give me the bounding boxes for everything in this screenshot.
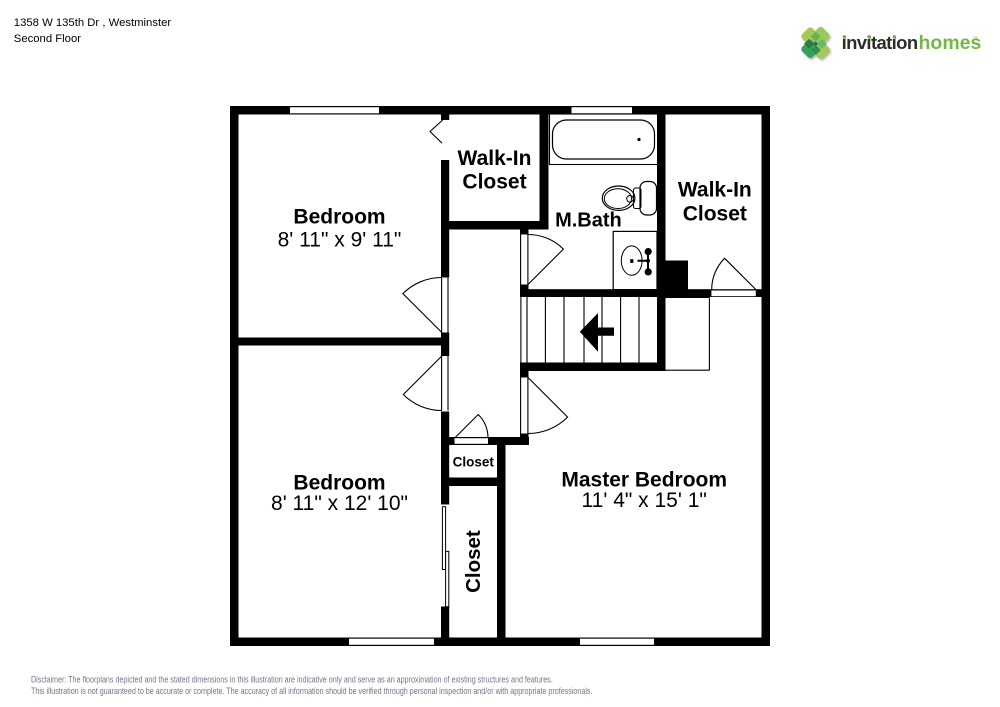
svg-text:Walk-In: Walk-In <box>678 179 752 202</box>
svg-text:8' 11" x 9' 11": 8' 11" x 9' 11" <box>278 228 402 251</box>
svg-text:Closet: Closet <box>453 454 495 469</box>
svg-text:Bedroom: Bedroom <box>293 206 385 229</box>
svg-text:Closet: Closet <box>462 171 526 194</box>
svg-text:Disclaimer: The floorplans dep: Disclaimer: The floorplans depicted and … <box>31 674 553 685</box>
svg-text:™: ™ <box>973 36 978 42</box>
svg-text:invitation: invitation <box>842 32 918 53</box>
svg-text:11' 4" x 15' 1": 11' 4" x 15' 1" <box>582 489 707 512</box>
svg-text:Second Floor: Second Floor <box>14 33 81 45</box>
svg-text:8' 11" x 12' 10": 8' 11" x 12' 10" <box>271 492 408 515</box>
svg-text:Walk-In: Walk-In <box>458 147 532 170</box>
svg-text:Closet: Closet <box>683 202 747 225</box>
svg-text:M.Bath: M.Bath <box>555 209 622 231</box>
svg-text:This illustration is not guara: This illustration is not guaranteed to b… <box>31 685 592 696</box>
svg-text:Closet: Closet <box>462 530 485 593</box>
svg-text:1358 W 135th Dr , Westminster: 1358 W 135th Dr , Westminster <box>14 17 172 29</box>
